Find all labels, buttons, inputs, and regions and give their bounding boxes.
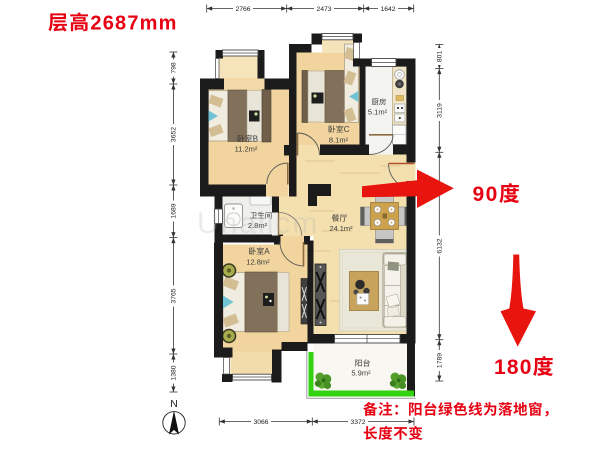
svg-text:8.1m²: 8.1m² (329, 136, 349, 145)
svg-text:3119: 3119 (437, 103, 444, 118)
svg-text:5.9m²: 5.9m² (351, 369, 371, 378)
svg-text:801: 801 (437, 51, 444, 63)
svg-text:1689: 1689 (171, 203, 178, 218)
svg-text:Uhallcm: Uhallcm (197, 207, 319, 240)
svg-text:N: N (170, 398, 178, 410)
svg-text:11.2m²: 11.2m² (235, 145, 258, 154)
svg-text:6132: 6132 (437, 238, 444, 253)
svg-text:3066: 3066 (253, 419, 268, 426)
svg-text:5.1m²: 5.1m² (368, 108, 388, 117)
svg-text:2687mm: 2687mm (90, 13, 177, 35)
svg-text:1789: 1789 (437, 353, 444, 368)
svg-text:90: 90 (473, 183, 499, 206)
svg-text:1642: 1642 (380, 6, 395, 13)
svg-text:1380: 1380 (171, 365, 178, 380)
svg-text:798: 798 (171, 62, 178, 74)
svg-text:12.8m²: 12.8m² (246, 258, 270, 267)
svg-text:3765: 3765 (171, 288, 178, 303)
svg-text:2473: 2473 (316, 6, 331, 13)
svg-text:180: 180 (494, 356, 533, 379)
svg-text:3652: 3652 (171, 127, 178, 142)
svg-text:C: C (344, 125, 350, 134)
svg-text:B: B (253, 135, 258, 144)
svg-text:3372: 3372 (350, 419, 365, 426)
svg-text:A: A (264, 247, 270, 256)
svg-text:2766: 2766 (235, 6, 250, 13)
svg-text:24.1m²: 24.1m² (329, 224, 353, 233)
